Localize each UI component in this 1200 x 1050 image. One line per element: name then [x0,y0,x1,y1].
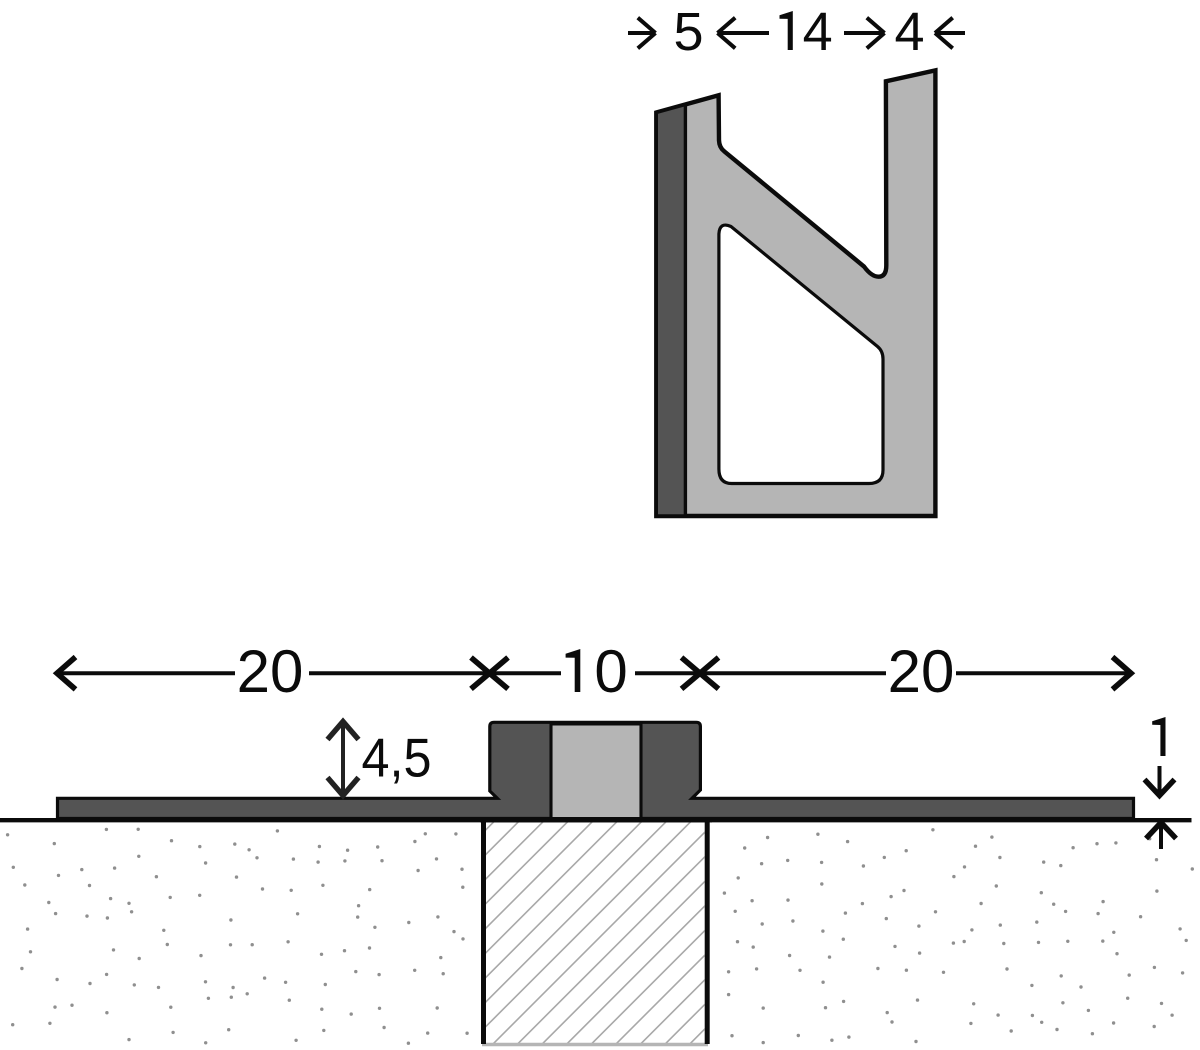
svg-text:20: 20 [888,638,955,705]
svg-text:4: 4 [803,2,833,62]
svg-text:20: 20 [237,638,304,705]
svg-text:5: 5 [673,2,703,62]
svg-text:0: 0 [594,638,627,705]
svg-text:4,5: 4,5 [362,727,432,789]
svg-text:4: 4 [894,2,924,62]
